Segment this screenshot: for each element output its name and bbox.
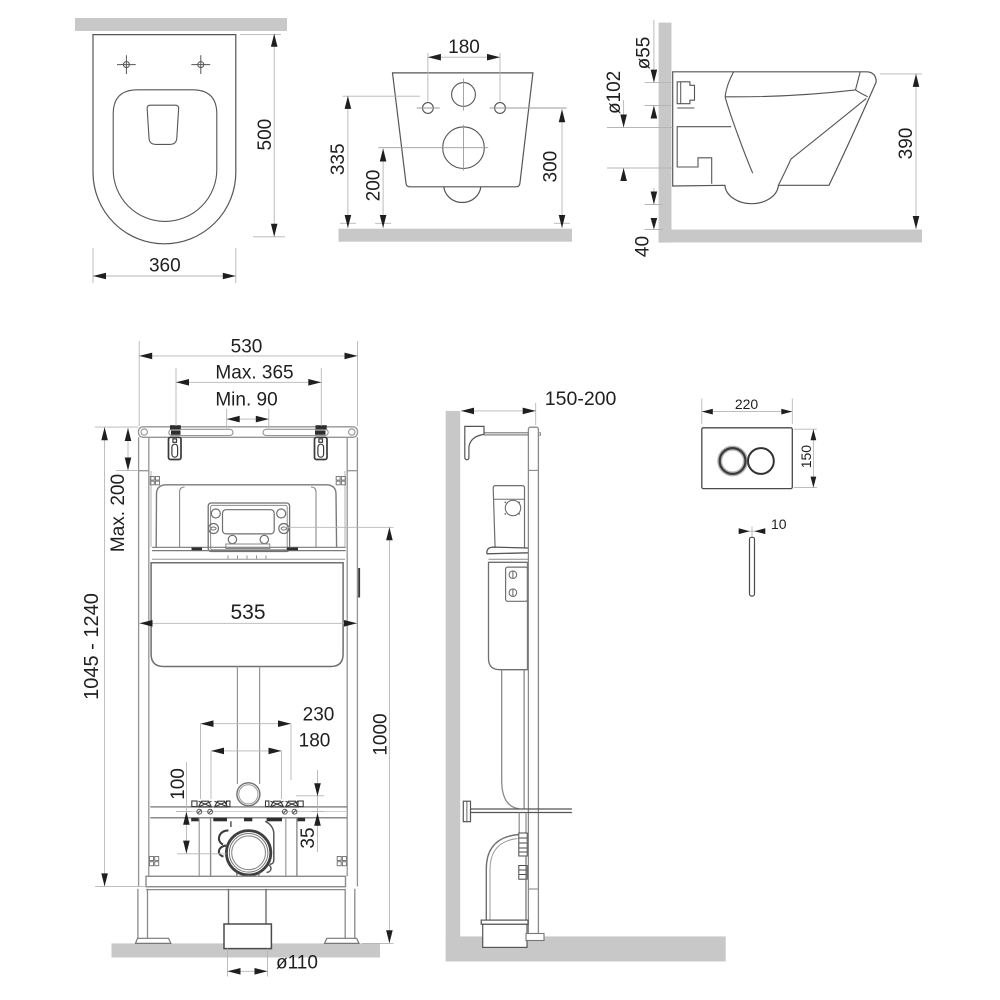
svg-text:Max. 200: Max. 200 (108, 474, 129, 552)
svg-text:180: 180 (299, 731, 331, 752)
svg-text:100: 100 (168, 768, 189, 800)
svg-text:35: 35 (298, 827, 319, 848)
svg-text:Max. 365: Max. 365 (215, 363, 293, 384)
svg-text:200: 200 (364, 170, 385, 202)
svg-text:ø110: ø110 (276, 953, 318, 974)
svg-text:180: 180 (448, 37, 480, 58)
svg-text:Min. 90: Min. 90 (215, 390, 277, 411)
svg-text:335: 335 (328, 143, 349, 175)
svg-text:360: 360 (149, 256, 181, 277)
svg-text:1045 - 1240: 1045 - 1240 (81, 593, 103, 700)
svg-text:150: 150 (798, 445, 814, 469)
svg-text:40: 40 (632, 236, 653, 257)
svg-text:1000: 1000 (370, 713, 391, 755)
svg-text:500: 500 (255, 119, 276, 151)
svg-text:ø55: ø55 (633, 37, 654, 70)
svg-text:150-200: 150-200 (545, 388, 617, 410)
svg-text:530: 530 (231, 337, 263, 358)
svg-text:10: 10 (771, 516, 787, 532)
svg-text:535: 535 (230, 601, 265, 624)
svg-text:390: 390 (896, 128, 917, 160)
svg-text:230: 230 (303, 705, 335, 726)
svg-text:300: 300 (540, 151, 561, 183)
svg-text:220: 220 (735, 396, 759, 412)
svg-text:ø102: ø102 (604, 71, 625, 114)
